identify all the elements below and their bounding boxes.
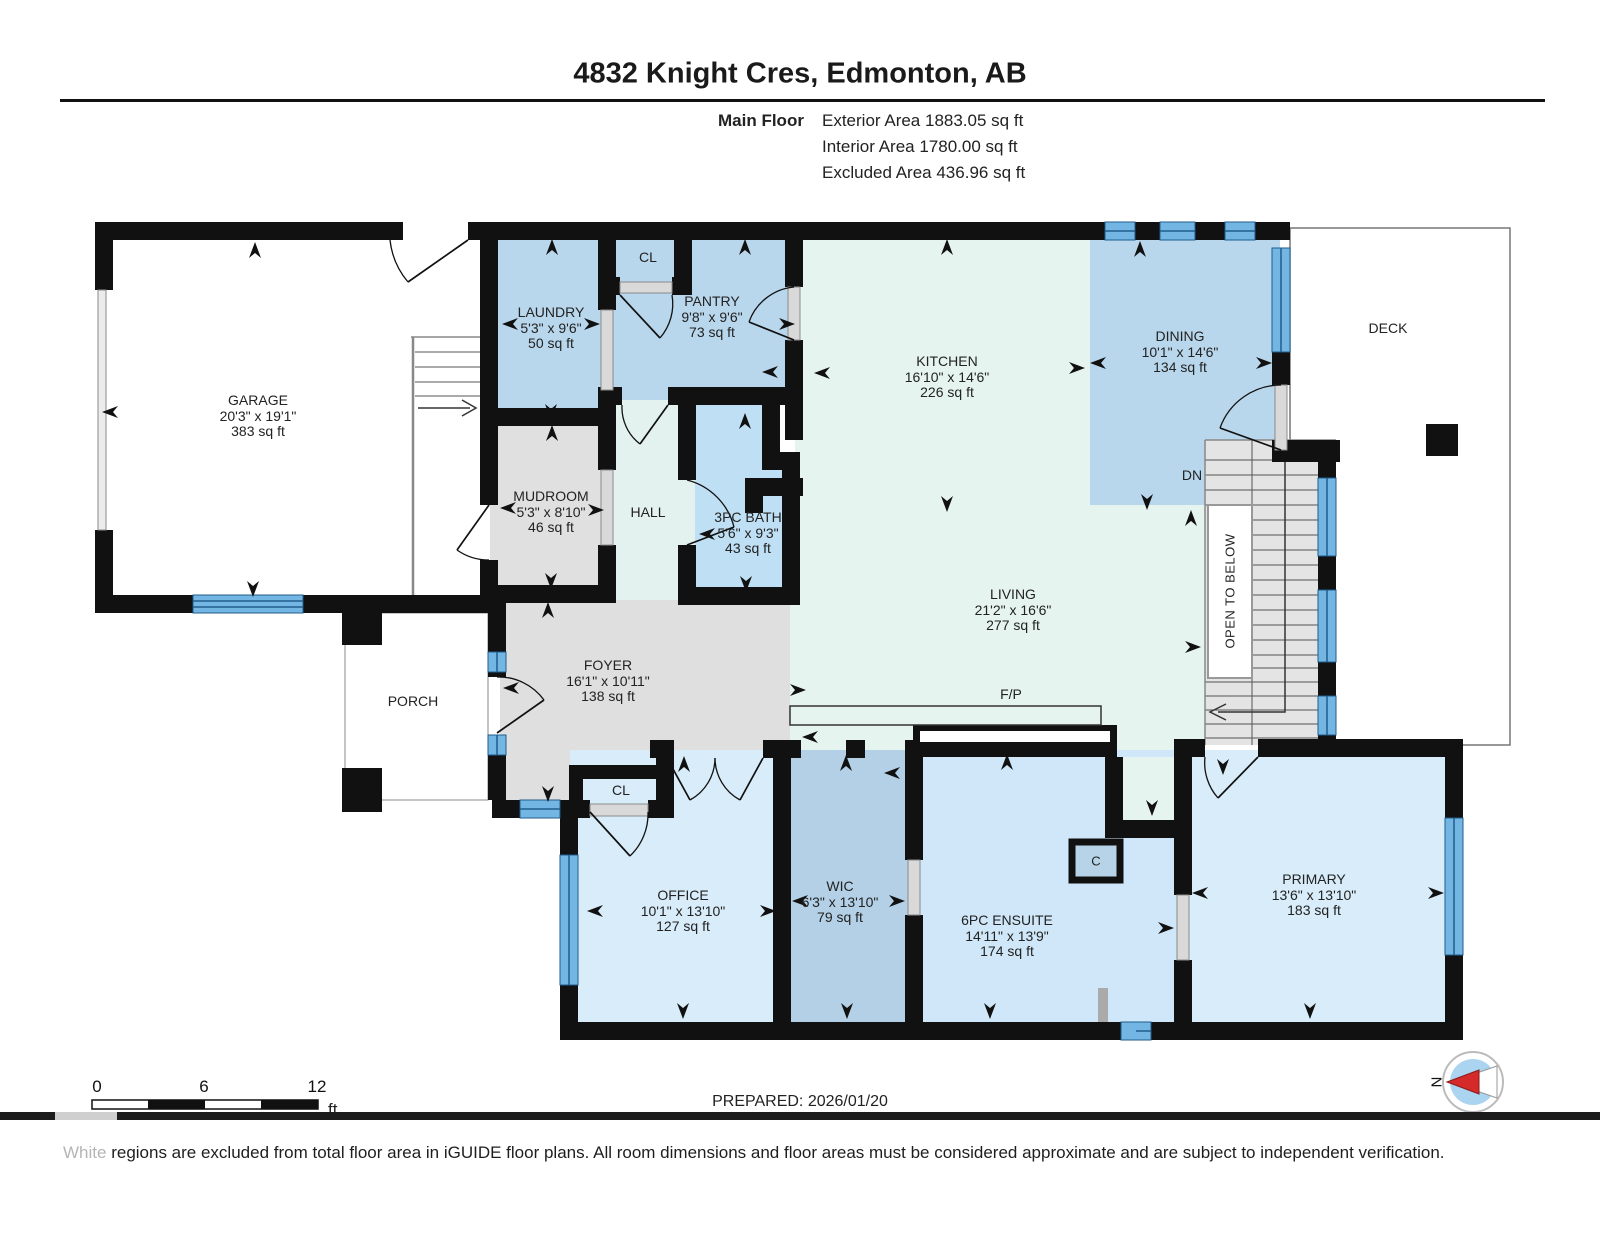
floor-plan-page: { "header": { "title": "4832 Knight Cres… <box>0 0 1600 1236</box>
room-label-kitchen: KITCHEN16'10" x 14'6"226 sq ft <box>905 354 990 401</box>
label-c-closet: C <box>1091 854 1100 869</box>
room-label-hall: HALL <box>630 504 665 520</box>
floor-plan-canvas <box>0 0 1600 1236</box>
scale-bar <box>92 1100 318 1109</box>
room-label-bath: 3PC BATH5'6" x 9'3"43 sq ft <box>714 510 781 557</box>
ensuite-partition-stub <box>1098 988 1108 1022</box>
label-closet-top: CL <box>639 249 657 265</box>
footer-disclaimer-highlight: White <box>63 1143 106 1162</box>
scale-label-6: 6 <box>199 1077 208 1097</box>
garage-side-wall-thin <box>98 290 106 530</box>
room-label-wic: WIC6'3" x 13'10"79 sq ft <box>802 879 879 926</box>
label-closet-foyer: CL <box>612 782 630 798</box>
footer-divider-bar <box>0 1112 1600 1120</box>
room-label-porch: PORCH <box>388 693 439 709</box>
compass-north-label: N <box>1428 1077 1445 1088</box>
room-label-laundry: LAUNDRY5'3" x 9'6"50 sq ft <box>518 305 585 352</box>
footer-disclaimer: White regions are excluded from total fl… <box>63 1143 1445 1163</box>
label-fireplace: F/P <box>1000 686 1022 702</box>
room-label-office: OFFICE10'1" x 13'10"127 sq ft <box>641 888 726 935</box>
room-label-deck: DECK <box>1369 320 1408 336</box>
scale-label-0: 0 <box>92 1077 101 1097</box>
label-open-to-below: OPEN TO BELOW <box>1223 533 1238 648</box>
room-label-primary: PRIMARY13'6" x 13'10"183 sq ft <box>1272 872 1357 919</box>
compass-icon <box>1443 1052 1503 1112</box>
label-stairs-dn: DN <box>1182 467 1202 483</box>
room-label-pantry: PANTRY9'8" x 9'6"73 sq ft <box>681 294 742 341</box>
room-label-mudroom: MUDROOM5'3" x 8'10"46 sq ft <box>513 489 588 536</box>
footer-divider-gap <box>55 1112 117 1120</box>
room-label-garage: GARAGE20'3" x 19'1"383 sq ft <box>220 393 297 440</box>
footer-disclaimer-text: regions are excluded from total floor ar… <box>111 1143 1444 1162</box>
room-label-living: LIVING21'2" x 16'6"277 sq ft <box>975 587 1052 634</box>
scale-label-12: 12 <box>308 1077 327 1097</box>
room-label-foyer: FOYER16'1" x 10'11"138 sq ft <box>566 658 650 705</box>
prepared-date: PREPARED: 2026/01/20 <box>712 1093 888 1111</box>
room-label-dining: DINING10'1" x 14'6"134 sq ft <box>1142 329 1219 376</box>
room-label-ensuite: 6PC ENSUITE14'11" x 13'9"174 sq ft <box>961 913 1053 960</box>
